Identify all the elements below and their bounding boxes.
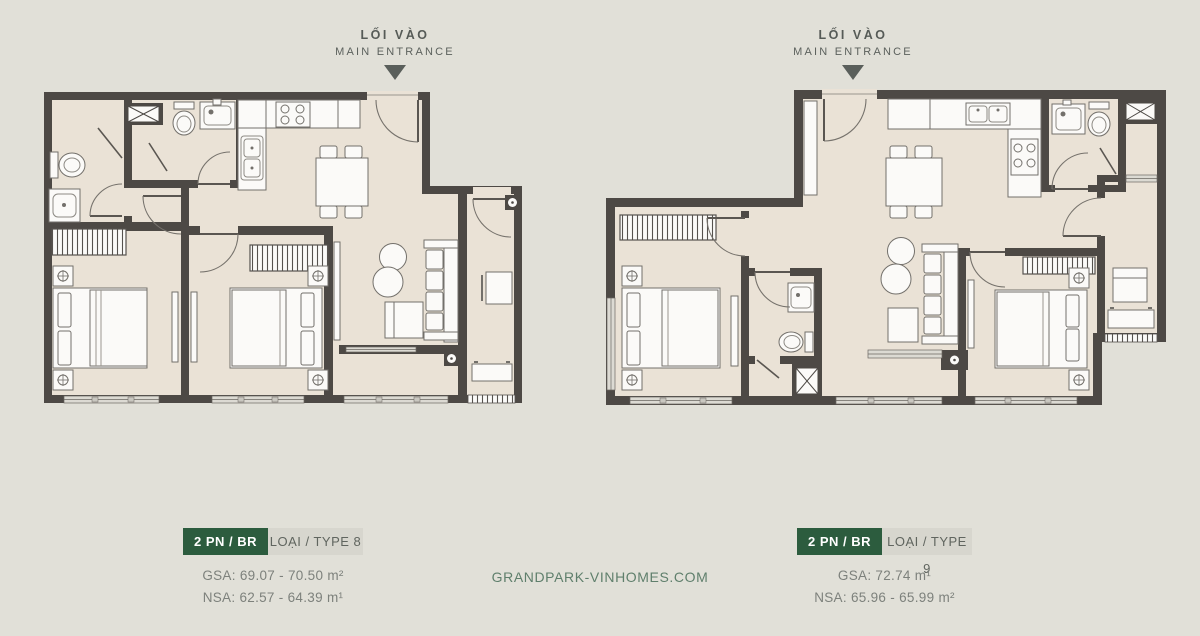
floor-plan-type-8: [44, 91, 522, 403]
type-badge: LOẠI / TYPE 9: [882, 528, 972, 555]
gsa-value: GSA: 72.74 m¹: [797, 568, 972, 583]
tv-console: [191, 292, 197, 362]
tv-console: [968, 280, 974, 348]
entrance-label-type9: LỐI VÀO MAIN ENTRANCE: [753, 28, 953, 80]
nsa-value: NSA: 65.96 - 65.99 m²: [797, 590, 972, 605]
bathroom-1: [1052, 100, 1110, 136]
badge-row: 2 PN / BR LOẠI / TYPE 8: [183, 528, 363, 555]
wardrobe: [620, 215, 716, 240]
shaft: [124, 103, 163, 125]
nsa-value: NSA: 62.57 - 64.39 m¹: [183, 590, 363, 605]
bedroom-2-bed: [230, 288, 322, 368]
entrance-arrow-icon: [384, 65, 406, 80]
entrance-label-type8: LỐI VÀO MAIN ENTRANCE: [295, 28, 495, 80]
entrance-label-en: MAIN ENTRANCE: [753, 46, 953, 58]
rooms-badge: 2 PN / BR: [183, 528, 268, 555]
stove: [1011, 139, 1038, 175]
rooms-badge: 2 PN / BR: [797, 528, 882, 555]
tv-console: [334, 242, 340, 340]
entrance-label-vi: LỐI VÀO: [295, 28, 495, 42]
entry-cabinet: [804, 101, 817, 195]
entrance-label-vi: LỐI VÀO: [753, 28, 953, 42]
type-badge: LOẠI / TYPE 8: [268, 528, 363, 555]
gsa-value: GSA: 69.07 - 70.50 m²: [183, 568, 363, 583]
plan-info-type9: 2 PN / BR LOẠI / TYPE 9 GSA: 72.74 m¹ NS…: [797, 528, 972, 605]
floor-plans-canvas: [0, 0, 1200, 636]
floor-plan-type-9: [606, 89, 1166, 405]
bedroom-2-bed: [995, 290, 1087, 368]
floor-plan-page: LỐI VÀO MAIN ENTRANCE LỐI VÀO MAIN ENTRA…: [0, 0, 1200, 636]
shaft: [1122, 99, 1159, 124]
tv-console: [731, 296, 738, 366]
balcony-furniture: [1108, 268, 1154, 328]
tv-console: [172, 292, 178, 362]
stove: [276, 102, 310, 127]
entrance-label-en: MAIN ENTRANCE: [295, 46, 495, 58]
shaft: [792, 364, 822, 398]
wardrobe: [52, 229, 126, 255]
master-bed: [622, 288, 720, 368]
entrance-arrow-icon: [842, 65, 864, 80]
plan-info-type8: 2 PN / BR LOẠI / TYPE 8 GSA: 69.07 - 70.…: [183, 528, 363, 605]
bedroom-1-bed: [53, 288, 147, 368]
watermark: GRANDPARK-VINHOMES.COM: [450, 569, 750, 585]
badge-row: 2 PN / BR LOẠI / TYPE 9: [797, 528, 972, 555]
